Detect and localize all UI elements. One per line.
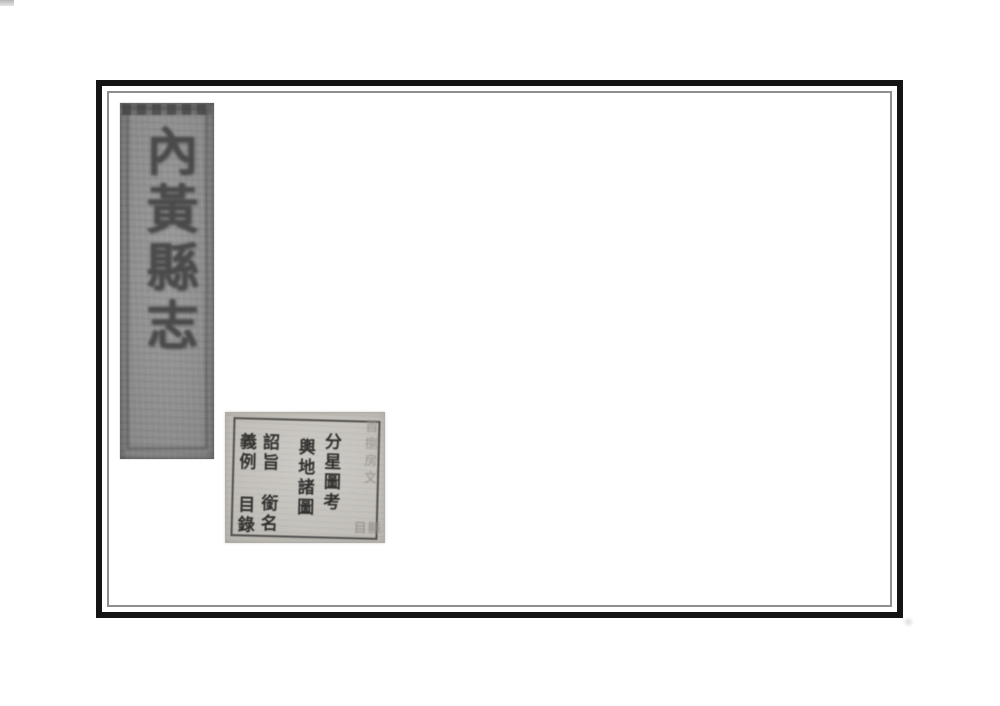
book-spine-title-strip: 內黃縣志 xyxy=(120,103,214,459)
book-title-vertical: 內黃縣志 xyxy=(141,124,193,356)
toc-column-yili: 義例 xyxy=(236,432,254,472)
toc-column-xianming: 銜名 xyxy=(258,494,276,534)
toc-faint-bottom-mark: 目縣 xyxy=(353,517,382,537)
toc-column-fenxing-tukao: 分星圖考 xyxy=(320,432,339,512)
page-border-frame xyxy=(96,80,903,618)
toc-column-yudi-zhutu: 輿地諸圖 xyxy=(294,438,313,518)
contents-label-printed-area: 首捌房文 分星圖考 輿地諸圖 詔旨 銜名 義例 目錄 目縣 xyxy=(224,411,385,544)
toc-column-zhaozhi: 詔旨 xyxy=(259,433,277,473)
scan-artifact-speck-top-left xyxy=(0,0,14,6)
scanned-book-cover-page: 內黃縣志 首捌房文 分星圖考 輿地諸圖 詔旨 銜名 義例 目錄 目縣 xyxy=(0,0,1000,706)
scan-artifact-speck-bottom-right xyxy=(903,617,914,627)
contents-label: 首捌房文 分星圖考 輿地諸圖 詔旨 銜名 義例 目錄 目縣 xyxy=(225,412,385,543)
toc-column-mulu: 目錄 xyxy=(234,495,252,535)
toc-column-faint-annotation: 首捌房文 xyxy=(362,420,377,488)
